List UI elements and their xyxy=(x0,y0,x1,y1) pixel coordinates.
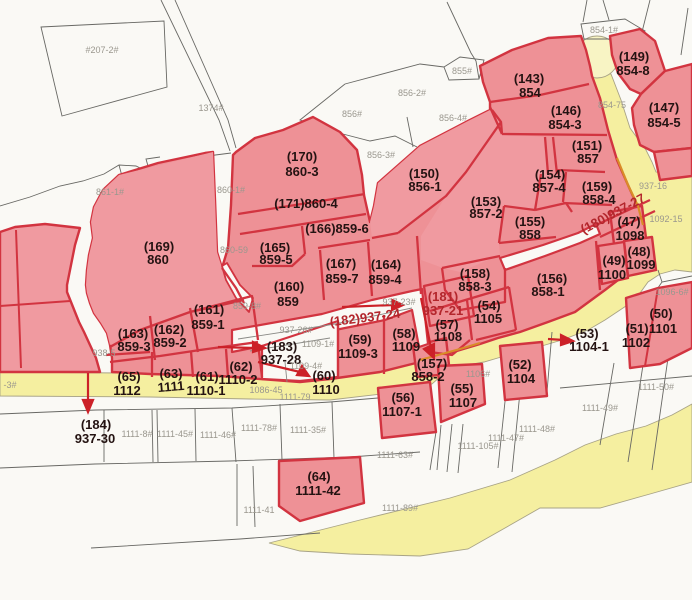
svg-text:859-1: 859-1 xyxy=(191,317,224,332)
svg-text:854-75: 854-75 xyxy=(598,100,626,110)
svg-text:1108: 1108 xyxy=(434,329,462,344)
svg-text:(149): (149) xyxy=(619,49,649,64)
svg-text:1104-1: 1104-1 xyxy=(569,339,609,354)
svg-text:859-8#: 859-8# xyxy=(233,301,261,311)
svg-text:1111-8#: 1111-8# xyxy=(121,429,152,439)
svg-text:859-3: 859-3 xyxy=(117,339,150,354)
svg-text:1109-1#: 1109-1# xyxy=(302,339,334,349)
svg-text:(65): (65) xyxy=(117,369,140,384)
svg-text:860-3: 860-3 xyxy=(285,164,318,179)
svg-text:(61): (61) xyxy=(195,369,218,384)
svg-text:856#: 856# xyxy=(342,109,362,119)
svg-text:938-5: 938-5 xyxy=(92,348,115,358)
svg-text:(55): (55) xyxy=(450,381,473,396)
svg-text:1111-50#: 1111-50# xyxy=(638,382,674,392)
svg-text:(164): (164) xyxy=(371,257,401,272)
svg-text:(161): (161) xyxy=(194,302,224,317)
svg-text:1106#: 1106# xyxy=(466,369,490,379)
svg-text:857-2: 857-2 xyxy=(469,206,502,221)
svg-text:1107: 1107 xyxy=(449,395,477,410)
svg-text:(51): (51) xyxy=(625,321,648,336)
svg-text:(59): (59) xyxy=(348,332,371,347)
svg-text:1099: 1099 xyxy=(627,257,656,272)
svg-text:858: 858 xyxy=(519,227,541,242)
svg-text:1096-6#: 1096-6# xyxy=(655,287,688,297)
svg-text:858-3: 858-3 xyxy=(458,279,491,294)
svg-text:1107-1: 1107-1 xyxy=(382,404,422,419)
svg-text:(56): (56) xyxy=(391,390,414,405)
svg-text:858-2: 858-2 xyxy=(411,369,444,384)
svg-text:1102: 1102 xyxy=(622,335,650,350)
svg-text:860-1#: 860-1# xyxy=(217,185,245,195)
svg-text:854: 854 xyxy=(519,85,541,100)
svg-text:856-3#: 856-3# xyxy=(367,150,395,160)
svg-text:(146): (146) xyxy=(551,103,581,118)
svg-text:(52): (52) xyxy=(508,357,531,372)
svg-text:856-2#: 856-2# xyxy=(398,88,426,98)
svg-text:(143): (143) xyxy=(514,71,544,86)
svg-text:859-4: 859-4 xyxy=(368,272,402,287)
svg-text:859-2: 859-2 xyxy=(153,335,186,350)
svg-text:854-3: 854-3 xyxy=(548,117,581,132)
svg-text:858-1: 858-1 xyxy=(531,284,564,299)
svg-text:937-26#: 937-26# xyxy=(279,325,312,335)
svg-text:859: 859 xyxy=(277,294,299,309)
svg-text:1086-45: 1086-45 xyxy=(249,385,282,395)
svg-text:(184): (184) xyxy=(81,417,111,432)
svg-text:1100: 1100 xyxy=(598,267,626,282)
svg-text:#207-2#: #207-2# xyxy=(85,45,118,55)
svg-text:857: 857 xyxy=(577,151,599,166)
svg-text:-3#: -3# xyxy=(3,380,16,390)
svg-text:856-1: 856-1 xyxy=(408,179,441,194)
svg-text:(167): (167) xyxy=(326,256,356,271)
svg-text:1111-89#: 1111-89# xyxy=(382,503,418,513)
svg-text:1111: 1111 xyxy=(157,378,185,395)
svg-text:1111-79: 1111-79 xyxy=(279,392,310,402)
svg-text:1110: 1110 xyxy=(312,382,340,397)
svg-text:1111-46#: 1111-46# xyxy=(200,430,236,440)
svg-text:1110-1: 1110-1 xyxy=(186,383,225,398)
svg-text:1111-63#: 1111-63# xyxy=(377,450,413,460)
svg-text:(147): (147) xyxy=(649,100,679,115)
svg-text:(50): (50) xyxy=(649,306,672,321)
svg-text:1109-3: 1109-3 xyxy=(338,346,378,361)
svg-text:860: 860 xyxy=(147,252,169,267)
svg-text:(160): (160) xyxy=(274,279,304,294)
svg-text:1111-42: 1111-42 xyxy=(295,483,341,498)
svg-text:(64): (64) xyxy=(307,469,330,484)
svg-text:859-7: 859-7 xyxy=(325,271,358,286)
svg-text:937-16: 937-16 xyxy=(639,181,667,191)
svg-text:1109-4#: 1109-4# xyxy=(290,361,322,371)
svg-text:1101: 1101 xyxy=(649,321,677,336)
svg-text:1111-49#: 1111-49# xyxy=(582,403,618,413)
svg-text:1374#: 1374# xyxy=(198,103,223,113)
svg-text:1111-48#: 1111-48# xyxy=(519,424,555,434)
svg-text:937-21: 937-21 xyxy=(423,303,463,318)
svg-text:(181): (181) xyxy=(428,289,458,304)
svg-text:856-4#: 856-4# xyxy=(439,113,467,123)
svg-text:(171)860-4: (171)860-4 xyxy=(274,196,338,211)
svg-text:1092-15: 1092-15 xyxy=(649,214,682,224)
svg-text:1111-35#: 1111-35# xyxy=(290,425,326,435)
svg-text:854-5: 854-5 xyxy=(647,115,680,130)
svg-text:857-4: 857-4 xyxy=(532,180,566,195)
svg-text:937-23#: 937-23# xyxy=(382,297,415,307)
svg-text:854-8: 854-8 xyxy=(616,63,649,78)
svg-text:1109: 1109 xyxy=(392,339,420,354)
svg-text:855#: 855# xyxy=(452,66,472,76)
svg-text:1111-47#: 1111-47# xyxy=(488,433,524,443)
svg-text:860-59: 860-59 xyxy=(220,245,248,255)
svg-text:861-1#: 861-1# xyxy=(96,187,124,197)
svg-text:1111-78#: 1111-78# xyxy=(241,423,277,433)
svg-text:(49): (49) xyxy=(602,253,625,268)
svg-text:1111-45#: 1111-45# xyxy=(157,429,193,439)
svg-text:1098: 1098 xyxy=(616,228,645,243)
svg-text:859-5: 859-5 xyxy=(259,252,292,267)
svg-text:1104: 1104 xyxy=(507,371,536,386)
svg-text:1112: 1112 xyxy=(113,383,141,398)
svg-text:937-30: 937-30 xyxy=(75,431,115,446)
svg-text:1111-41: 1111-41 xyxy=(243,505,274,515)
svg-text:1105: 1105 xyxy=(474,311,502,326)
svg-text:(170): (170) xyxy=(287,149,317,164)
svg-text:(166)859-6: (166)859-6 xyxy=(305,221,369,236)
svg-text:854-1#: 854-1# xyxy=(590,25,618,35)
